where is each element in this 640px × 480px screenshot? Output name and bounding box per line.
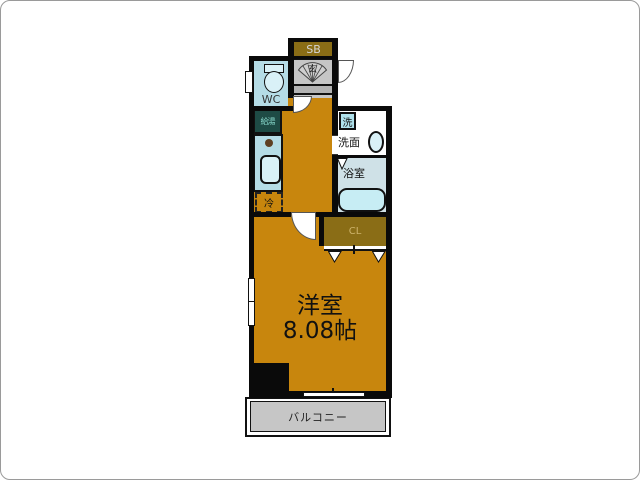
closet-door-triangle: [328, 251, 342, 263]
wc-label: WC: [254, 93, 288, 106]
room-label: 洋室 8.08帖: [254, 294, 386, 344]
floorplan: SB 給湯 冷 洗 CL バルコニー 玄: [0, 0, 640, 480]
closet-door-tick: [353, 245, 355, 254]
washroom-label: 洗面: [338, 134, 360, 150]
kitchen-sink: [260, 155, 281, 184]
balcony-window-tick: [332, 388, 334, 393]
balcony: バルコニー: [250, 401, 386, 432]
entrance-label: 玄: [293, 62, 332, 75]
room-type-label: 洋室: [254, 294, 386, 319]
burner-icon: [265, 139, 273, 147]
wc-window: [245, 71, 253, 93]
wall: [338, 106, 392, 111]
toilet-bowl-icon: [264, 71, 284, 93]
refrigerator-label: 冷: [264, 195, 274, 210]
wall: [249, 56, 293, 61]
room-area-label: 8.08帖: [254, 319, 386, 344]
water-heater: 給湯: [253, 109, 282, 134]
front-door-arc: [338, 60, 354, 83]
wall: [289, 38, 338, 42]
wall: [386, 106, 392, 398]
washer-label: 洗: [343, 114, 353, 129]
bathroom-label: 浴室: [343, 165, 365, 181]
shoe-box-label: SB: [306, 43, 321, 56]
balcony-label: バルコニー: [288, 409, 348, 425]
wall: [249, 212, 291, 217]
closet-door-triangle: [372, 251, 386, 263]
refrigerator-space: 冷: [255, 192, 283, 213]
water-heater-label: 給湯: [261, 116, 275, 127]
wall: [319, 217, 324, 246]
balcony-window: [303, 392, 365, 397]
entrance-step: [293, 84, 332, 95]
closet-label: CL: [349, 226, 362, 237]
wall: [249, 106, 293, 111]
wall: [293, 56, 332, 59]
bathtub: [338, 188, 386, 212]
washroom-sink: [368, 131, 384, 153]
wall: [316, 212, 392, 217]
wall: [337, 155, 386, 158]
washer-space: 洗: [339, 112, 356, 130]
closet: CL: [324, 217, 386, 246]
